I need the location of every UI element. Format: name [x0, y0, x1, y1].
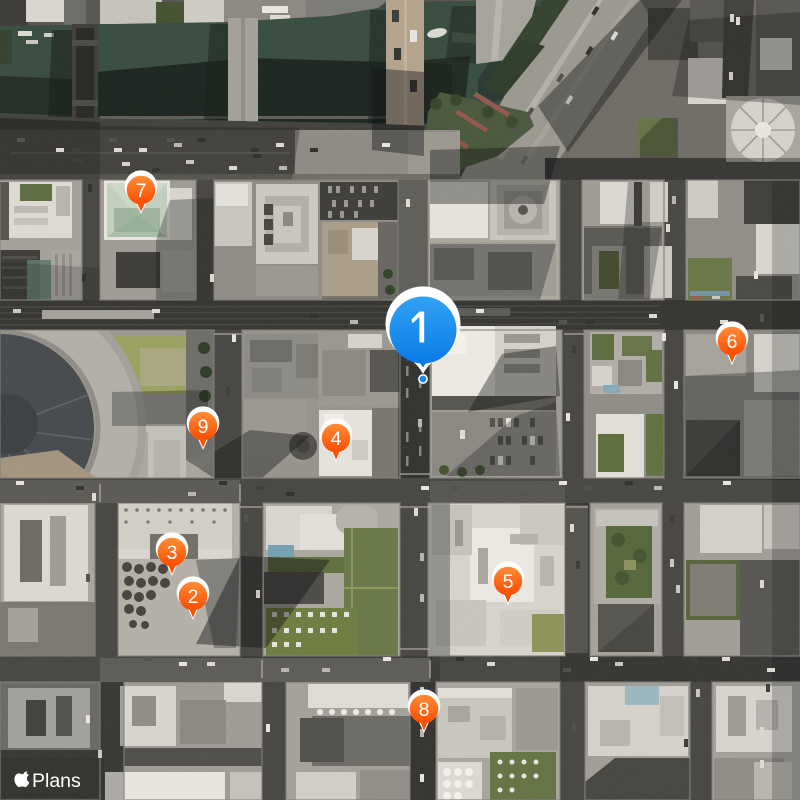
- svg-text:5: 5: [503, 571, 514, 593]
- svg-text:9: 9: [198, 416, 209, 438]
- svg-text:4: 4: [331, 428, 342, 450]
- svg-text:3: 3: [167, 542, 178, 564]
- svg-text:8: 8: [419, 699, 430, 721]
- svg-text:6: 6: [727, 331, 738, 353]
- svg-text:2: 2: [188, 586, 199, 608]
- svg-text:7: 7: [136, 180, 147, 202]
- svg-text:Plans: Plans: [32, 770, 81, 792]
